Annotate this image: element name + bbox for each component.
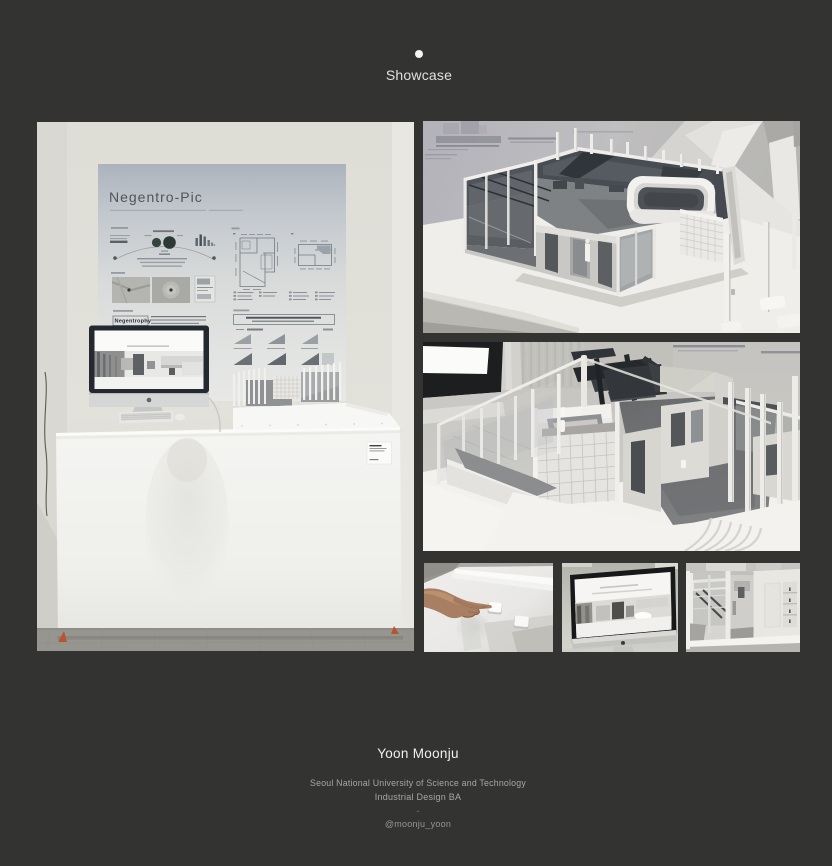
svg-text:Negentrophy: Negentrophy [115,319,152,325]
svg-text:Negentro-Pic: Negentro-Pic [109,189,203,205]
